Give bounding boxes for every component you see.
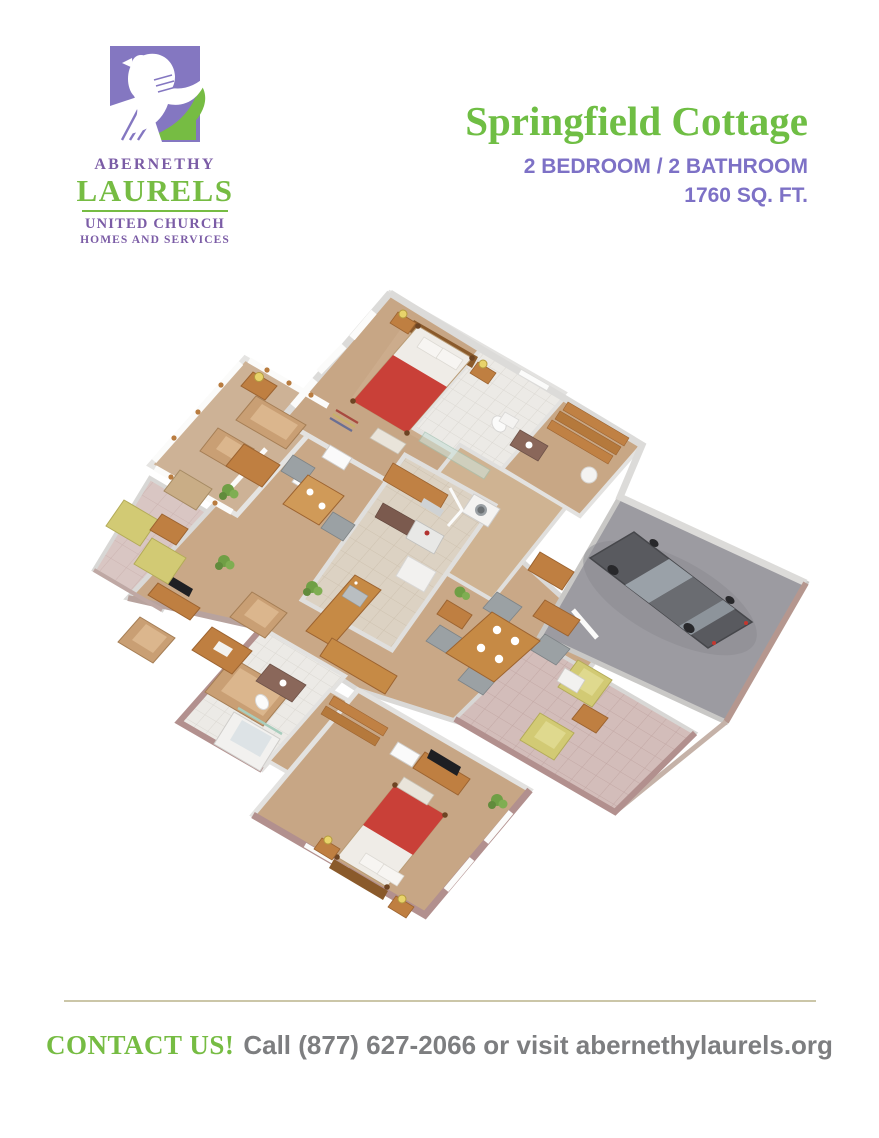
bed2-lamp-1 (324, 836, 332, 844)
flyer-page: ABERNETHY LAURELS UNITED CHURCH HOMES AN… (0, 0, 879, 1138)
breakfast-plate-1 (307, 489, 314, 496)
bed2-lamp-2 (398, 895, 406, 903)
vanity-2-sink (280, 680, 287, 687)
nightstand-lamp-1 (479, 360, 487, 368)
car-taillight-2 (744, 621, 748, 625)
footer: CONTACT US!Call (877) 627-2066 or visit … (0, 1030, 879, 1061)
table-lamp (255, 373, 264, 382)
footer-divider-line (64, 1000, 816, 1002)
contact-us-label: CONTACT US! (46, 1030, 234, 1060)
washer-door-glass (477, 506, 484, 513)
breakfast-plate-2 (319, 503, 326, 510)
faucet (354, 581, 357, 584)
floorplan-rendering (0, 0, 879, 1138)
contact-info-text: Call (877) 627-2066 or visit abernethyla… (243, 1030, 833, 1060)
laundry-hamper (581, 467, 597, 483)
vanity-sink (526, 442, 533, 449)
nightstand-lamp-2 (399, 310, 407, 318)
red-pot (425, 531, 430, 536)
car-taillight-1 (712, 641, 716, 645)
